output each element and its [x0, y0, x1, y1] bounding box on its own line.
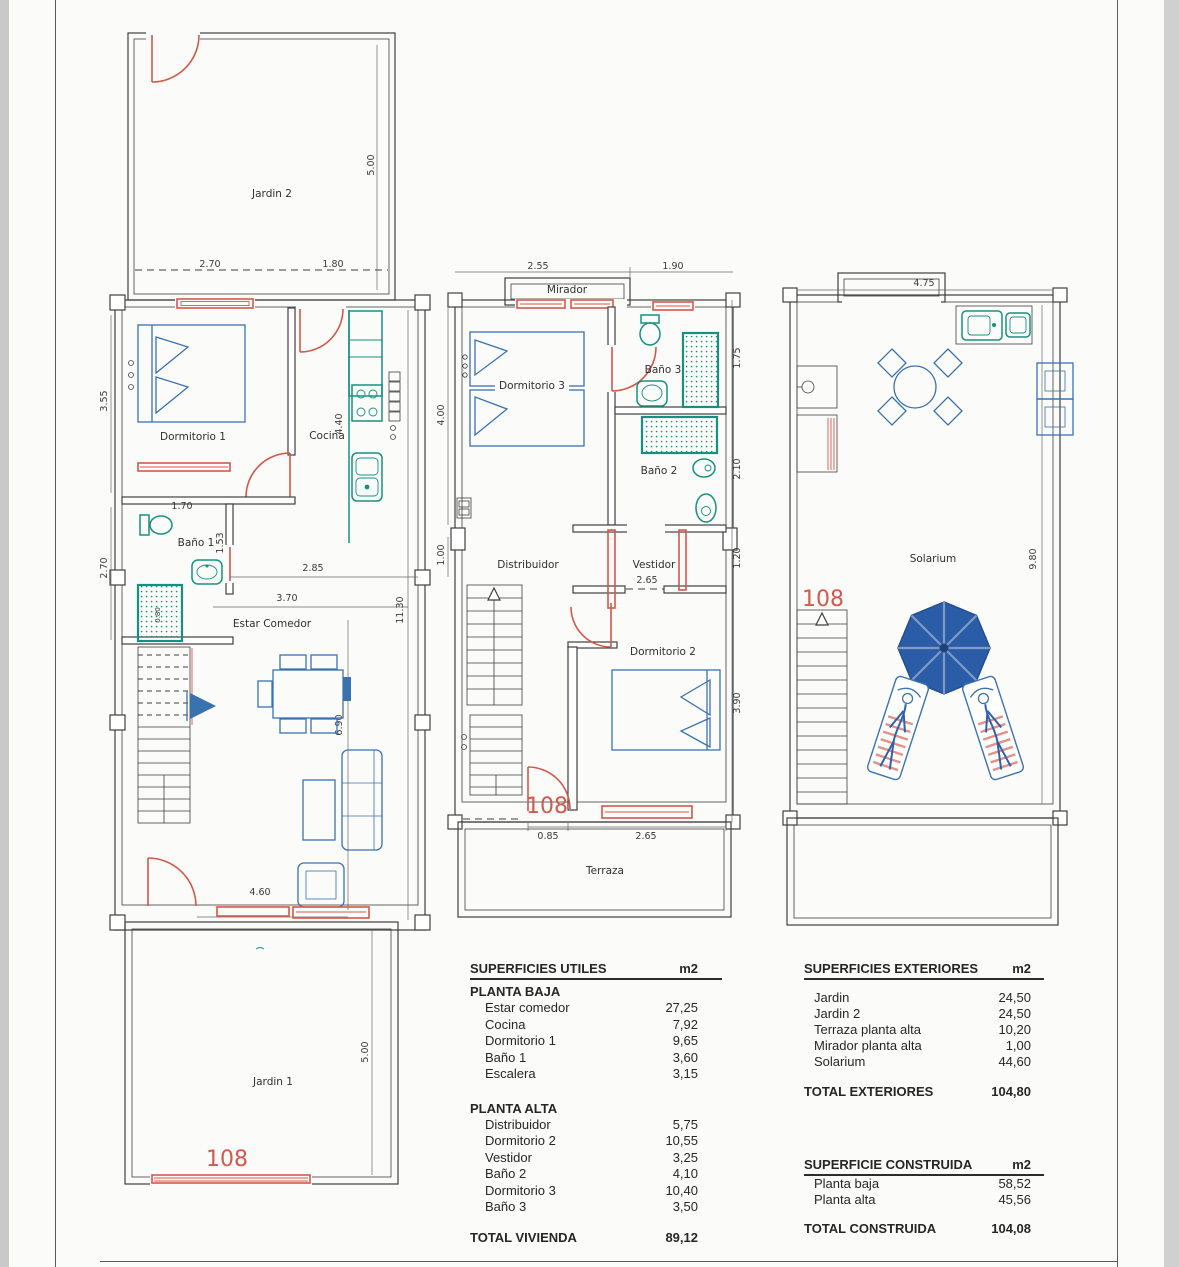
window-icon: [600, 804, 694, 820]
table-title: SUPERFICIES EXTERIORES: [804, 961, 978, 976]
coffee-table-icon: [303, 780, 335, 840]
dim-bano3-height: 1.75: [732, 347, 743, 368]
table-row: Cocina7,92: [470, 1017, 722, 1034]
kitchen-sink-icon: [352, 453, 382, 501]
water-heater-icon: [457, 498, 471, 518]
table-unit: m2: [679, 961, 698, 976]
table-row: Dormitorio 210,55: [470, 1133, 722, 1150]
window-icon: [651, 301, 695, 311]
table-row: Planta alta45,56: [804, 1192, 1044, 1208]
bano3-label: Baño 3: [645, 364, 682, 376]
table-row: Terraza planta alta10,20: [804, 1022, 1044, 1038]
kitchen-counter-icon: [349, 311, 382, 396]
table-unit: m2: [1012, 1157, 1031, 1172]
table-row: Vestidor3,25: [470, 1150, 722, 1167]
unit-number-solarium: 108: [802, 587, 844, 612]
table-total-row: TOTAL EXTERIORES104,80: [804, 1084, 1044, 1100]
jardin1-label: Jardin 1: [252, 1076, 293, 1088]
dormitorio1-label: Dormitorio 1: [160, 431, 226, 443]
sheet-border-bottom: [100, 1261, 1118, 1262]
window-icon: [175, 297, 255, 309]
table-total-row: TOTAL VIVIENDA89,12: [470, 1230, 722, 1247]
stove-icon: [352, 385, 382, 421]
table-row: Planta baja58,52: [804, 1176, 1044, 1192]
table-total-row: TOTAL CONSTRUIDA104,08: [804, 1221, 1044, 1237]
appliance-column-icon: [389, 372, 400, 440]
mirador-label: Mirador: [547, 284, 588, 296]
table-row: Escalera3,15: [470, 1066, 722, 1083]
bano2-label: Baño 2: [641, 465, 678, 477]
bed-icon: [138, 325, 245, 422]
dim-dorm2-height: 3.90: [732, 692, 743, 713]
scan-edge-left: [0, 0, 9, 1267]
armchair-icon: [298, 863, 344, 907]
shower-icon: [683, 333, 718, 407]
table-row: Dormitorio 19,65: [470, 1033, 722, 1050]
ac-units-icon: [1037, 363, 1073, 435]
superficie-construida-table: SUPERFICIE CONSTRUIDA m2 Planta baja58,5…: [804, 1157, 1044, 1237]
dim-jardin2-w1: 2.70: [199, 259, 220, 270]
gate-icon: [150, 1173, 312, 1185]
scan-edge-right: [1164, 0, 1179, 1267]
table-row: Distribuidor5,75: [470, 1117, 722, 1134]
dim-jardin1-height: 5.00: [360, 1041, 371, 1062]
unit-number-ground: 108: [206, 1147, 248, 1172]
stairs-icon: [138, 647, 192, 823]
distribuidor-label: Distribuidor: [497, 559, 559, 571]
dim-bano1-left: 2.70: [99, 557, 110, 578]
terraza-label: Terraza: [585, 865, 624, 877]
door-arc-icon: [571, 603, 611, 647]
shower-icon: 0.80: [138, 585, 182, 641]
dim-right-small: 1.20: [732, 547, 743, 568]
section-heading: PLANTA ALTA: [470, 1100, 722, 1117]
bathroom-sink-icon: [637, 381, 667, 406]
table-row: Baño 24,10: [470, 1166, 722, 1183]
stairs-icon: [797, 610, 847, 804]
mirador-room: Mirador: [505, 278, 630, 309]
table-title: SUPERFICIES UTILES: [470, 961, 607, 976]
dim-entrance-width: 4.60: [249, 887, 270, 898]
superficies-exteriores-table: SUPERFICIES EXTERIORES m2 Jardin24,50 Ja…: [804, 961, 1044, 1100]
table-row: Mirador planta alta1,00: [804, 1038, 1044, 1054]
bathroom-sink-icon: [696, 494, 716, 522]
dormitorio1-room: Dormitorio 1 3.55: [99, 308, 295, 497]
dim-solarium-height: 9.80: [1028, 548, 1039, 569]
sheet-border-right: [1117, 0, 1118, 1267]
toilet-icon: [140, 515, 172, 535]
dim-bano1-width: 1.70: [171, 501, 192, 512]
sheet-border-left: [55, 0, 56, 1267]
wall-cabinet-icon: [797, 366, 837, 472]
bathroom-sink-icon: [192, 560, 222, 584]
shower-icon: [642, 417, 717, 453]
wardrobe-icon: [138, 463, 230, 471]
table-row: Estar comedor27,25: [470, 1000, 722, 1017]
dormitorio2-label: Dormitorio 2: [630, 646, 696, 658]
dim-top-right-width: 1.90: [662, 261, 683, 272]
dim-solarium-width: 4.75: [913, 278, 934, 289]
table-title: SUPERFICIE CONSTRUIDA: [804, 1157, 972, 1172]
solarium-plan: 4.75 Solari: [780, 260, 1080, 935]
superficies-utiles-table: SUPERFICIES UTILES m2 PLANTA BAJA Estar …: [470, 961, 722, 1246]
dormitorio3-label: Dormitorio 3: [499, 380, 565, 392]
estar-label: Estar Comedor: [233, 618, 312, 630]
dining-table-icon: [258, 655, 351, 733]
table-row: Baño 13,60: [470, 1050, 722, 1067]
sun-lounger-icon: [866, 675, 929, 781]
table-row: Baño 33,50: [470, 1199, 722, 1216]
dim-jardin2-w2: 1.80: [322, 259, 343, 270]
upper-floor-plan: Mirador 2.55 1.90: [435, 255, 755, 935]
toilet-icon: [640, 315, 660, 345]
dormitorio2-room: Dormitorio 2 3.90: [571, 603, 743, 750]
dormitorio3-room: Dormitorio 3 4.00: [436, 307, 584, 525]
round-table-icon: [878, 349, 962, 425]
vestidor-label: Vestidor: [633, 559, 676, 571]
estar-comedor-room: Estar Comedor 2.85 3.70 11.30 6.90 4.60: [146, 310, 418, 929]
dim-left-small: 1.00: [436, 544, 447, 565]
stairs-icon: [462, 585, 523, 795]
outdoor-sink-icon: [956, 306, 1032, 344]
table-row: Jardin 224,50: [804, 1006, 1044, 1022]
dim-estar-w1: 2.85: [302, 563, 323, 574]
table-row: Dormitorio 310,40: [470, 1183, 722, 1200]
dim-bano1-height: 1.53: [215, 532, 226, 553]
jardin2-label: Jardin 2: [251, 188, 292, 200]
dim-dorm1-height: 3.55: [99, 390, 110, 411]
dim-mirador-width: 2.55: [527, 261, 548, 272]
table-header: SUPERFICIE CONSTRUIDA m2: [804, 1157, 1044, 1176]
bed-icon: [612, 670, 720, 750]
table-row: Solarium44,60: [804, 1054, 1044, 1070]
dim-house-height: 11.30: [395, 596, 406, 623]
table-unit: m2: [1012, 961, 1031, 976]
bano1-label: Baño 1: [178, 537, 215, 549]
floor-plan-sheet: 5.00 2.70 1.80 Jardin 2: [0, 0, 1179, 1267]
dim-dorm3-height: 4.00: [436, 404, 447, 425]
ground-floor-plan: 5.00 2.70 1.80 Jardin 2: [90, 25, 440, 1225]
jardin2-room: 5.00 2.70 1.80 Jardin 2: [128, 29, 395, 300]
jardin1-room: Jardin 1 5.00 108: [125, 922, 398, 1185]
table-row: Jardin24,50: [804, 990, 1044, 1006]
bano2-room: Baño 2 2.10: [641, 417, 743, 522]
dim-terraza-w2: 2.65: [635, 831, 656, 842]
window-icon: [217, 907, 369, 918]
door-arc-icon: [246, 453, 290, 497]
dim-shower: 0.80: [154, 607, 162, 623]
unit-number-upper: 108: [526, 794, 568, 819]
bidet-icon: [693, 459, 715, 477]
table-header: SUPERFICIES EXTERIORES m2: [804, 961, 1044, 980]
dim-terraza-w1: 0.85: [537, 831, 558, 842]
entrance-door-arc-icon: [146, 858, 197, 929]
door-arc-icon: [296, 301, 346, 352]
table-header: SUPERFICIES UTILES m2: [470, 961, 722, 980]
tv-icon: [187, 691, 216, 721]
lower-terrace: [787, 818, 1058, 925]
solarium-label: Solarium: [910, 553, 957, 565]
terraza-room: Terraza: [458, 822, 731, 917]
sun-lounger-icon: [961, 675, 1024, 781]
dim-jardin2-height: 5.00: [366, 154, 377, 175]
dim-cocina-height: 4.40: [334, 413, 345, 434]
dim-estar-w2: 3.70: [276, 593, 297, 604]
dim-bano2-height: 2.10: [732, 458, 743, 479]
solarium-shell: [783, 273, 1067, 825]
dim-vestidor-width: 2.65: [636, 575, 657, 586]
section-heading: PLANTA BAJA: [470, 983, 722, 1000]
